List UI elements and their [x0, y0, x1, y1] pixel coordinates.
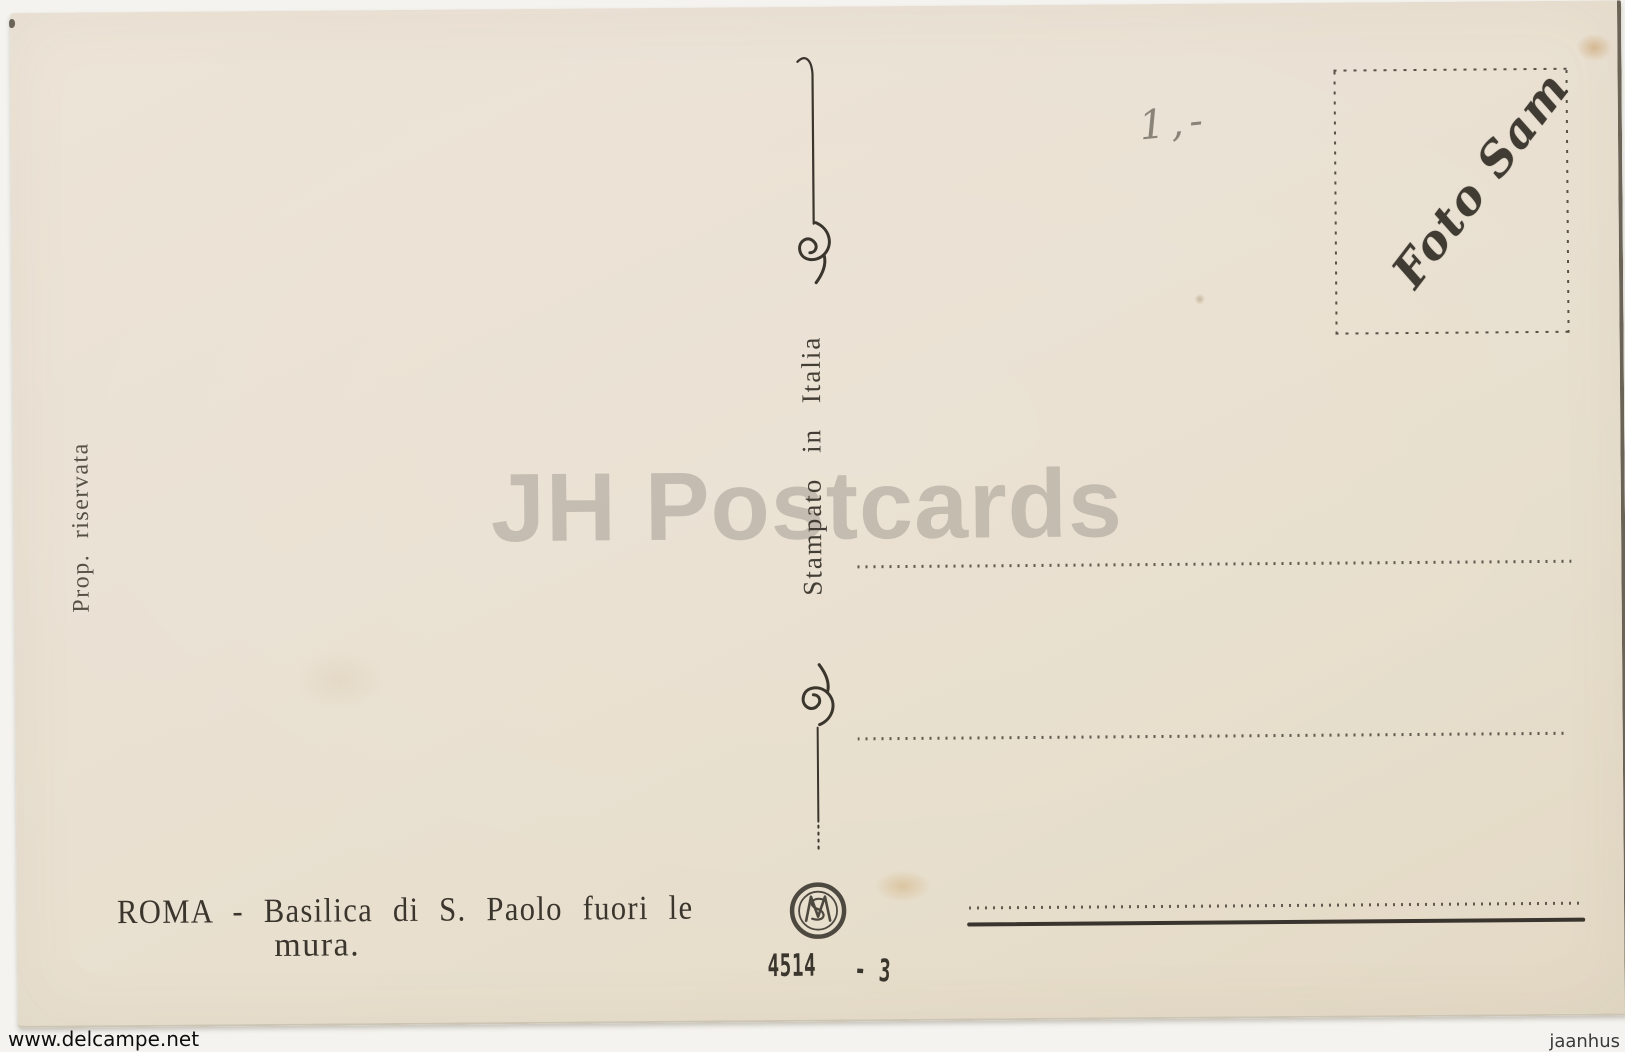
stamp-box: Foto Sam — [1333, 68, 1569, 335]
scan-source-watermark-right: jaanhus — [1549, 1032, 1620, 1052]
serial-number-suffix: - 3 — [853, 954, 891, 987]
address-baseline — [967, 918, 1585, 927]
foxing-stain — [875, 870, 931, 902]
scan-source-watermark-left: www.delcampe.net — [8, 1028, 199, 1050]
address-line-1 — [857, 560, 1571, 569]
foxing-stain — [295, 650, 385, 711]
caption-title-line1: ROMA - Basilica di S. Paolo fuori le — [117, 892, 694, 931]
corner-damage-mark — [9, 19, 15, 28]
serial-number-value: 4514 — [767, 951, 816, 982]
address-line-2 — [858, 732, 1569, 741]
divider-line-top — [797, 58, 813, 224]
rights-notice-text: Prop. riservata — [66, 392, 96, 662]
foxing-stain — [1194, 294, 1205, 305]
foxing-stain — [1576, 33, 1612, 61]
printed-in-italy-text: Stampato in Italia — [794, 296, 829, 636]
caption-title-line2: mura. — [274, 928, 360, 963]
scroll-flourish-icon — [803, 665, 833, 725]
divider-line-bottom — [818, 728, 819, 822]
publisher-monogram-icon — [792, 884, 844, 936]
serial-number: 4514 - 3 — [767, 950, 914, 982]
publisher-signature: Foto Sam — [1381, 102, 1549, 297]
postcard-back: JH Postcards Prop. riservata Stampato in… — [10, 0, 1625, 1028]
handwritten-price: 1,- — [1137, 88, 1311, 150]
address-line-3 — [969, 902, 1584, 910]
scroll-flourish-icon — [799, 223, 829, 283]
